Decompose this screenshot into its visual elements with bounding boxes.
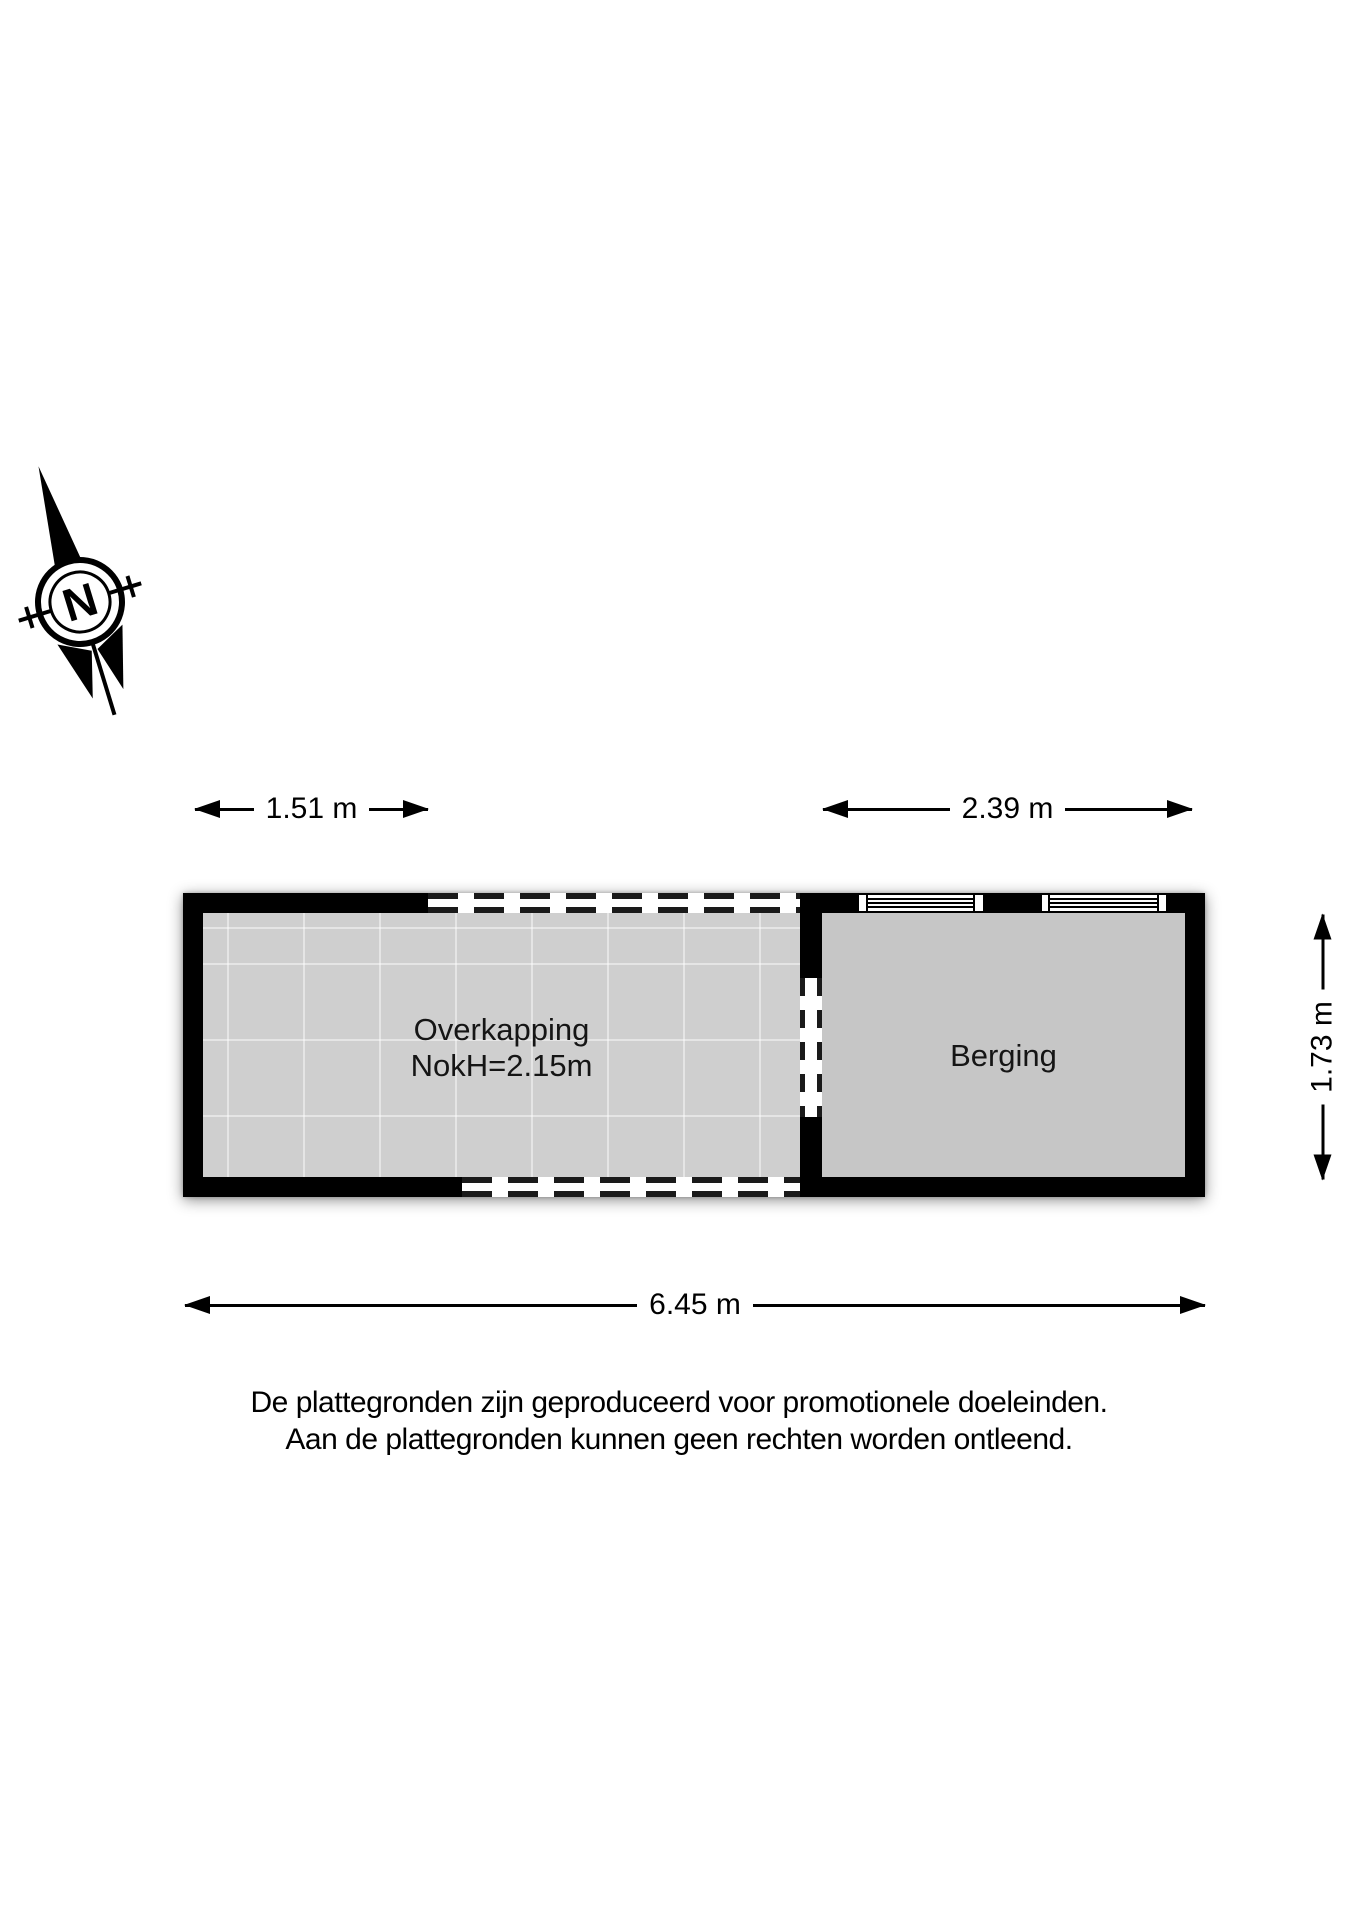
dimension-label: 1.73 m	[1306, 1001, 1340, 1093]
dimension-line-left	[195, 808, 254, 811]
open-side-top-dashed	[428, 893, 800, 913]
divider-opening-dashed	[800, 978, 822, 1117]
window-post	[1157, 893, 1168, 913]
window-post	[973, 893, 985, 913]
berging-name: Berging	[822, 1038, 1185, 1074]
dimension-total-width: 6.45 m	[185, 1288, 1205, 1322]
wall-top-berging-segment	[1168, 893, 1185, 913]
dimension-label: 6.45 m	[649, 1288, 741, 1322]
dimension-line-bottom	[1321, 1105, 1324, 1180]
wall-top-overkapping	[183, 893, 428, 913]
wall-right	[1185, 893, 1205, 1197]
disclaimer: De plattegronden zijn geproduceerd voor …	[0, 1384, 1358, 1458]
open-side-bottom-dashed	[462, 1177, 800, 1197]
dimension-line-top	[1321, 915, 1324, 990]
wall-divider-top	[800, 893, 822, 978]
dimension-line-right	[1065, 808, 1192, 811]
wall-top-berging-segment	[985, 893, 1040, 913]
wall-left	[183, 893, 203, 1197]
dimension-line-right	[369, 808, 428, 811]
dimension-berging-depth: 1.73 m	[1306, 915, 1340, 1180]
berging-label: Berging	[822, 1038, 1185, 1074]
floorplan-page: N 1.51 m 2.39 m 1.73 m 6.45 m	[0, 0, 1358, 1920]
dimension-berging-width: 2.39 m	[823, 792, 1192, 826]
dimension-label: 2.39 m	[962, 792, 1054, 826]
dimension-line-right	[753, 1304, 1205, 1307]
window	[1050, 893, 1157, 913]
overkapping-label: Overkapping NokH=2.15m	[203, 1012, 800, 1084]
wall-bottom-berging	[800, 1177, 1205, 1197]
floor-plan: Overkapping NokH=2.15m Berging	[183, 893, 1205, 1197]
disclaimer-line-1: De plattegronden zijn geproduceerd voor …	[0, 1384, 1358, 1421]
dimension-line-left	[185, 1304, 637, 1307]
overkapping-name: Overkapping	[203, 1012, 800, 1048]
window	[868, 893, 973, 913]
dimension-overkapping-width: 1.51 m	[195, 792, 428, 826]
dimension-label: 1.51 m	[266, 792, 358, 826]
wall-divider-bottom	[800, 1117, 822, 1197]
north-compass-icon: N	[8, 450, 158, 730]
window-post	[857, 893, 868, 913]
compass-needle	[25, 462, 82, 570]
disclaimer-line-2: Aan de plattegronden kunnen geen rechten…	[0, 1421, 1358, 1458]
overkapping-ridge-height: NokH=2.15m	[203, 1048, 800, 1084]
window-post	[1040, 893, 1050, 913]
wall-bottom-overkapping	[183, 1177, 462, 1197]
dimension-line-left	[823, 808, 950, 811]
wall-top-berging-segment	[822, 893, 857, 913]
